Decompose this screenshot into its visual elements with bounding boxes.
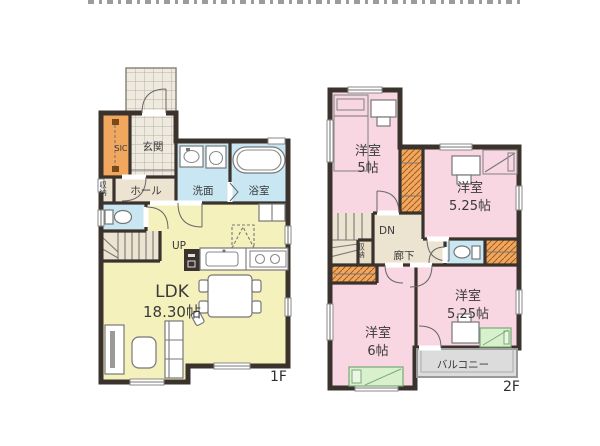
floorplan-svg: SIC 玄関 収納 ホール 洗面 浴室 UP LDK 18.30帖 1F [0, 0, 600, 446]
kitchen-cabinet-dark [184, 249, 200, 271]
storage-label-2f: 収納 [356, 243, 365, 259]
washing-machine-icon [206, 146, 226, 168]
bedroom-5-size: 5帖 [357, 161, 378, 176]
genkan-label: 玄関 [143, 140, 164, 153]
storage-label-1f: 収納 [98, 181, 107, 198]
stairs-up-label: UP [172, 240, 186, 252]
bedroom-525-top-label: 洋室 [457, 180, 483, 196]
stairs-dn-label: DN [379, 225, 395, 237]
dining-table [208, 275, 252, 317]
bathroom-label: 浴室 [249, 184, 270, 197]
sic-label: SIC [114, 144, 127, 153]
bedroom-6-furniture [349, 367, 403, 386]
bedroom-525-bottom-size: 5.25帖 [447, 307, 489, 322]
ldk-label: LDK [155, 282, 190, 302]
floor-1-label: 1F [270, 369, 287, 385]
bathtub-icon [233, 147, 285, 173]
washroom-label: 洗面 [193, 185, 214, 197]
bedroom-525-top-size: 5.25帖 [449, 199, 491, 214]
toilet-icon-2f [454, 246, 480, 259]
desk [452, 322, 479, 343]
balcony-label: バルコニー [437, 359, 489, 371]
bedroom-6-size: 6帖 [367, 344, 388, 359]
bedroom-5-label: 洋室 [355, 143, 381, 159]
floor-2-label: 2F [503, 379, 520, 395]
corridor-label: 廊下 [394, 249, 415, 262]
floorplan-image: SIC 玄関 収納 ホール 洗面 浴室 UP LDK 18.30帖 1F [0, 0, 600, 446]
bedroom-525-bottom-label: 洋室 [455, 288, 481, 304]
entrance-porch [126, 68, 176, 113]
desk [371, 100, 396, 117]
bedroom-6-label: 洋室 [365, 325, 391, 341]
porch-tiles [126, 68, 176, 113]
stairs-1f [101, 231, 160, 261]
hall-label: ホール [130, 185, 162, 197]
cropped-text-strip [88, 0, 524, 4]
sofa [165, 321, 183, 378]
coffee-table [132, 337, 156, 368]
floor-1-plan: SIC 玄関 収納 ホール 洗面 浴室 UP LDK 18.30帖 1F [98, 68, 291, 385]
toilet-icon-1f [105, 210, 132, 224]
ldk-size-label: 18.30帖 [143, 303, 201, 321]
desk [452, 156, 480, 175]
washbasin-icon [180, 146, 203, 167]
tv-icon [110, 331, 115, 368]
floor-2-plan: 洋室 5帖 洋室 5.25帖 DN 収納 廊下 洋室 5.25帖 洋室 6帖 バ… [327, 87, 522, 395]
